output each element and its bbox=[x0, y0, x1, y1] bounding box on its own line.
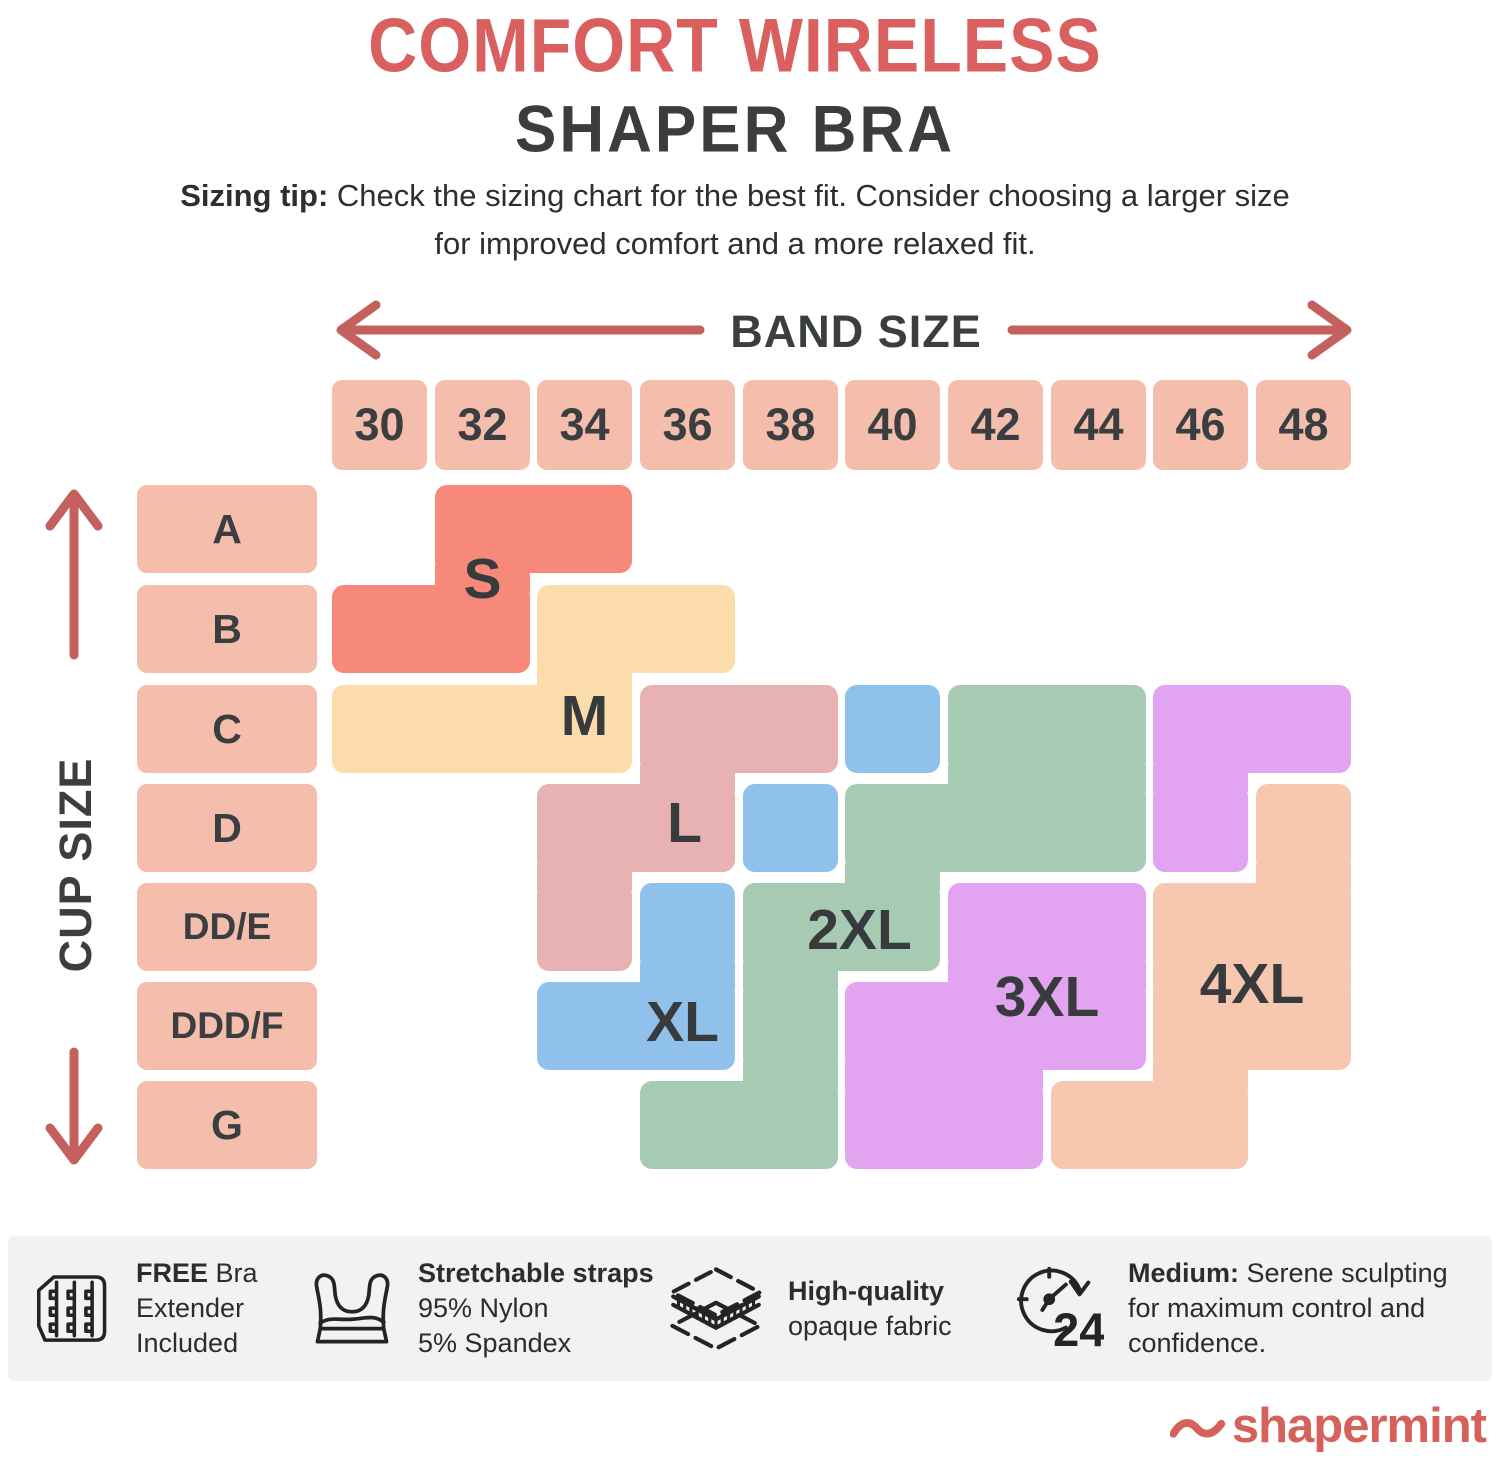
size-region-l bbox=[640, 685, 838, 773]
feature-text: FREE BraExtenderIncluded bbox=[136, 1256, 258, 1361]
size-region-2xl bbox=[743, 982, 838, 1070]
size-region-xl bbox=[845, 685, 940, 773]
band-size-cell: 34 bbox=[537, 380, 632, 470]
cup-size-cell: B bbox=[137, 585, 317, 673]
size-region-2xl bbox=[640, 1081, 838, 1169]
size-region-2xl-join bbox=[743, 1062, 838, 1089]
size-region-2xl bbox=[948, 685, 1146, 773]
bra-icon bbox=[310, 1266, 394, 1352]
band-size-cell: 36 bbox=[640, 380, 735, 470]
size-region-2xl-join bbox=[948, 765, 1146, 792]
band-size-cell: 42 bbox=[948, 380, 1043, 470]
feature-text-line: Stretchable straps bbox=[418, 1256, 654, 1291]
band-size-cell: 38 bbox=[743, 380, 838, 470]
cup-size-cell: C bbox=[137, 685, 317, 773]
feature-stretchable-straps: Stretchable straps95% Nylon5% Spandex bbox=[310, 1236, 654, 1381]
size-region-3xl bbox=[845, 1081, 1043, 1169]
size-region-label: 2XL bbox=[807, 897, 912, 963]
cup-size-cell: DDD/F bbox=[137, 982, 317, 1070]
cup-size-cell: G bbox=[137, 1081, 317, 1169]
size-region-l bbox=[537, 784, 735, 872]
band-size-cell: 44 bbox=[1051, 380, 1146, 470]
feature-text-line: 95% Nylon bbox=[418, 1291, 654, 1326]
size-region-2xl-join bbox=[845, 864, 940, 891]
feature-text: Stretchable straps95% Nylon5% Spandex bbox=[418, 1256, 654, 1361]
band-size-cell: 32 bbox=[435, 380, 530, 470]
size-region-label: M bbox=[561, 683, 608, 749]
feature-text-line: confidence. bbox=[1128, 1326, 1448, 1361]
clock-24-badge: 24 bbox=[1053, 1303, 1104, 1355]
feature-bra-extender: FREE BraExtenderIncluded bbox=[26, 1236, 258, 1381]
size-region-2xl-join bbox=[743, 963, 838, 990]
bra-extender-icon bbox=[26, 1269, 112, 1349]
band-size-cell: 46 bbox=[1153, 380, 1248, 470]
size-region-xl bbox=[743, 784, 838, 872]
fabric-layers-icon bbox=[668, 1263, 764, 1355]
size-region-label: XL bbox=[646, 989, 719, 1055]
cup-size-cell: DD/E bbox=[137, 883, 317, 971]
size-region-3xl-join bbox=[845, 1062, 1043, 1089]
brand-logo-text: shapermint bbox=[1232, 1398, 1486, 1454]
cup-size-cell: D bbox=[137, 784, 317, 872]
band-size-cell: 40 bbox=[845, 380, 940, 470]
size-region-l bbox=[537, 883, 632, 971]
size-region-label: S bbox=[463, 546, 501, 612]
size-region-4xl-join bbox=[1256, 864, 1351, 891]
feature-text-line: FREE Bra bbox=[136, 1256, 258, 1291]
feature-text-line: High-quality bbox=[788, 1274, 952, 1309]
feature-text-line: Medium: Serene sculpting bbox=[1128, 1256, 1448, 1291]
size-region-label: L bbox=[667, 790, 702, 856]
size-region-label: 4XL bbox=[1200, 951, 1305, 1017]
size-region-3xl bbox=[1153, 784, 1248, 872]
clock-24-icon: 24 bbox=[1014, 1263, 1104, 1355]
brand-logo: shapermint bbox=[1170, 1398, 1486, 1454]
size-region-m bbox=[537, 585, 735, 673]
cup-size-cell: A bbox=[137, 485, 317, 573]
logo-squiggle-icon bbox=[1170, 1409, 1228, 1443]
feature-text: High-qualityopaque fabric bbox=[788, 1274, 952, 1344]
size-region-3xl bbox=[948, 883, 1146, 971]
size-region-xl-join bbox=[640, 963, 735, 990]
size-region-l-join bbox=[640, 765, 735, 792]
size-region-label: 3XL bbox=[995, 964, 1100, 1030]
size-region-4xl bbox=[1256, 784, 1351, 872]
size-region-3xl-join bbox=[1153, 765, 1248, 792]
size-region-3xl bbox=[1153, 685, 1351, 773]
feature-text-line: Extender bbox=[136, 1291, 258, 1326]
feature-text-line: Included bbox=[136, 1326, 258, 1361]
size-region-4xl bbox=[1051, 1081, 1248, 1169]
size-region-2xl bbox=[845, 784, 1146, 872]
size-region-xl bbox=[640, 883, 735, 971]
size-region-4xl-join bbox=[1153, 1062, 1248, 1089]
feature-text: Medium: Serene sculptingfor maximum cont… bbox=[1128, 1256, 1448, 1361]
feature-opaque-fabric: High-qualityopaque fabric bbox=[668, 1236, 952, 1381]
size-region-l-join bbox=[537, 864, 632, 891]
band-size-cell: 48 bbox=[1256, 380, 1351, 470]
feature-medium-control: 24 Medium: Serene sculptingfor maximum c… bbox=[1014, 1236, 1448, 1381]
feature-text-line: for maximum control and bbox=[1128, 1291, 1448, 1326]
band-size-cell: 30 bbox=[332, 380, 427, 470]
feature-text-line: 5% Spandex bbox=[418, 1326, 654, 1361]
feature-text-line: opaque fabric bbox=[788, 1309, 952, 1344]
